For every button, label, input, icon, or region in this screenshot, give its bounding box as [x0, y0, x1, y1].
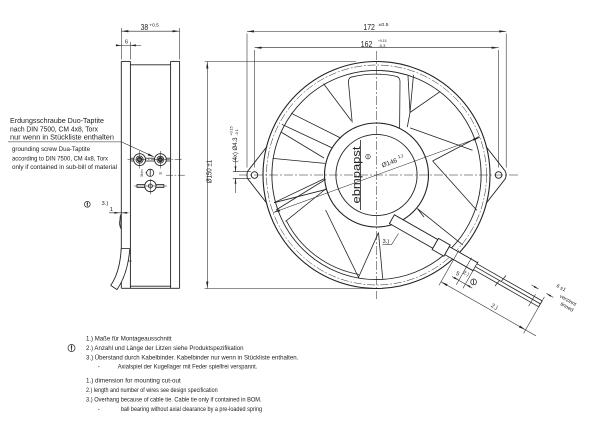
svg-text:according to DIN 7500, CM 4x8,: according to DIN 7500, CM 4x8, Torx — [12, 155, 109, 162]
svg-text:-: - — [98, 406, 100, 413]
svg-text:3.) Overhang because of cable: 3.) Overhang because of cable tie. Cable… — [86, 397, 262, 404]
svg-text:±0.5: ±0.5 — [379, 22, 389, 28]
svg-text:172: 172 — [363, 23, 375, 32]
svg-text:Axialspiel der Kugellager mit: Axialspiel der Kugellager mit Feder spie… — [118, 364, 258, 371]
svg-text:-0.1: -0.1 — [235, 129, 239, 135]
svg-text:+0.15: +0.15 — [230, 126, 234, 135]
svg-text:+0.5: +0.5 — [149, 23, 159, 29]
svg-text:3.): 3.) — [102, 201, 109, 207]
svg-text:3.): 3.) — [383, 239, 390, 245]
svg-text:1.) dimension for mounting cut: 1.) dimension for mounting cut-out — [86, 377, 181, 384]
svg-text:1.) Maße für Montageausschnitt: 1.) Maße für Montageausschnitt — [86, 336, 172, 343]
svg-text:38: 38 — [141, 23, 149, 32]
svg-text:(4x) Ø4.3: (4x) Ø4.3 — [233, 137, 239, 163]
svg-text:1: 1 — [110, 207, 113, 213]
svg-text:only if contained in sub-bill: only if contained in sub-bill of materia… — [12, 164, 117, 171]
svg-text:2.) length and number of wire: 2.) length and number of wires see desig… — [86, 387, 218, 394]
svg-text:6: 6 — [125, 39, 128, 45]
svg-text:Erdungsschraube Duo-Taptite: Erdungsschraube Duo-Taptite — [10, 118, 104, 125]
svg-text:2.) Anzahl und Länge der Litze: 2.) Anzahl und Länge der Litzen siehe Pr… — [86, 345, 244, 352]
svg-text:grounding screw Dua-Taptite: grounding screw Dua-Taptite — [12, 146, 90, 153]
svg-text:-: - — [98, 364, 100, 371]
svg-text:Ø150 ±1: Ø150 ±1 — [204, 160, 213, 184]
svg-text:nur wenn in Stückliste enthalt: nur wenn in Stückliste enthalten — [10, 135, 114, 142]
svg-text:ebmpapst: ebmpapst — [351, 145, 363, 203]
svg-text:nach DIN 7500, CM 4x8, Torx: nach DIN 7500, CM 4x8, Torx — [10, 126, 98, 133]
svg-text:162: 162 — [361, 40, 373, 49]
svg-text:3.) Überstand durch Kabelbinde: 3.) Überstand durch Kabelbinder. Kabelbi… — [86, 355, 299, 362]
svg-text:3Nm: 3Nm — [140, 169, 144, 177]
svg-text:-0.3: -0.3 — [378, 43, 385, 48]
svg-text:ball bearing without axial cle: ball bearing without axial clearance by … — [121, 406, 263, 413]
